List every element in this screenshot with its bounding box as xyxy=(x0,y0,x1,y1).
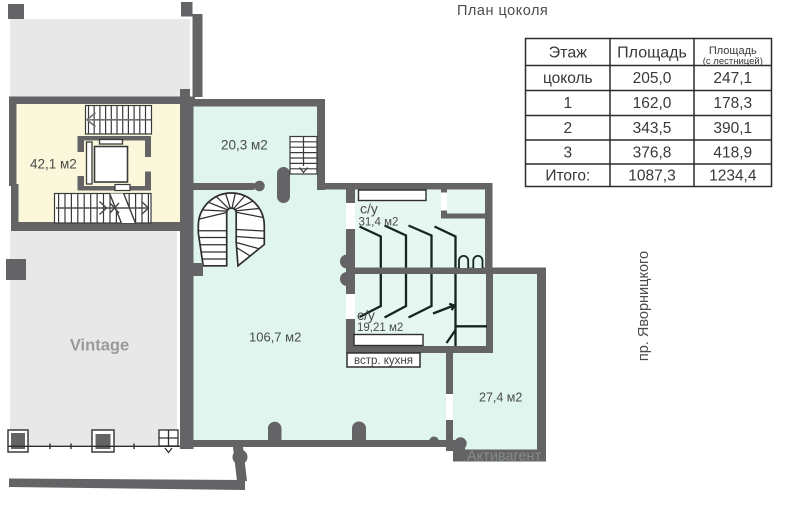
svg-text:162,0: 162,0 xyxy=(633,95,672,112)
svg-text:390,1: 390,1 xyxy=(713,120,752,137)
svg-text:Активагент: Активагент xyxy=(467,449,542,465)
svg-text:418,9: 418,9 xyxy=(713,145,752,162)
svg-text:205,0: 205,0 xyxy=(633,70,672,87)
svg-text:(с лестницей): (с лестницей) xyxy=(703,56,763,67)
svg-text:Итого:: Итого: xyxy=(545,168,590,185)
svg-text:1234,4: 1234,4 xyxy=(709,168,757,185)
svg-text:31,4 м2: 31,4 м2 xyxy=(359,217,399,229)
svg-text:Этаж: Этаж xyxy=(549,45,588,62)
svg-text:343,5: 343,5 xyxy=(633,120,672,137)
svg-text:19,21 м2: 19,21 м2 xyxy=(357,322,403,334)
svg-text:Vintage: Vintage xyxy=(70,337,129,355)
svg-text:247,1: 247,1 xyxy=(713,70,752,87)
svg-text:2: 2 xyxy=(563,120,572,137)
svg-text:пр. Яворницкого: пр. Яворницкого xyxy=(636,251,652,361)
svg-text:27,4 м2: 27,4 м2 xyxy=(479,391,522,405)
svg-text:с/у: с/у xyxy=(357,307,375,323)
svg-text:106,7 м2: 106,7 м2 xyxy=(249,330,301,345)
svg-text:с/у: с/у xyxy=(360,201,378,217)
svg-text:План цоколя: План цоколя xyxy=(457,3,548,19)
svg-text:376,8: 376,8 xyxy=(633,145,672,162)
svg-text:цоколь: цоколь xyxy=(543,70,593,87)
svg-text:1087,3: 1087,3 xyxy=(628,168,675,185)
svg-text:178,3: 178,3 xyxy=(713,95,752,112)
svg-text:Площадь: Площадь xyxy=(617,45,687,62)
svg-text:1: 1 xyxy=(563,95,572,112)
svg-text:20,3 м2: 20,3 м2 xyxy=(221,138,268,153)
svg-text:42,1 м2: 42,1 м2 xyxy=(30,157,77,172)
svg-text:3: 3 xyxy=(563,145,572,162)
svg-text:встр. кухня: встр. кухня xyxy=(354,355,413,367)
